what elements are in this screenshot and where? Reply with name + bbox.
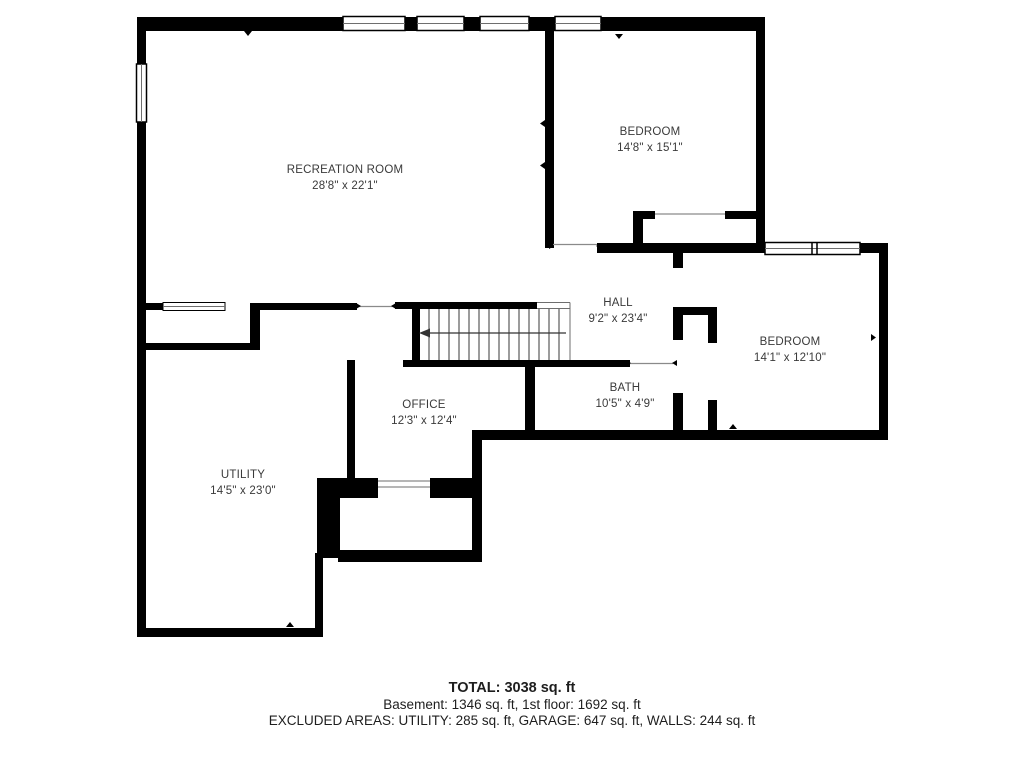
room-dimensions: 9'2" x 23'4" (588, 311, 647, 327)
room-name: RECREATION ROOM (287, 162, 404, 178)
room-dimensions: 14'8" x 15'1" (617, 140, 683, 156)
room-label-utility: UTILITY 14'5" x 23'0" (210, 467, 276, 499)
floor-areas-text: Basement: 1346 sq. ft, 1st floor: 1692 s… (0, 697, 1024, 713)
room-label-bedroom-right: BEDROOM 14'1" x 12'10" (754, 334, 826, 366)
windows-group (137, 17, 861, 311)
floor-plan-drawing (0, 0, 1024, 768)
walls-group (137, 17, 888, 637)
area-summary: TOTAL: 3038 sq. ft Basement: 1346 sq. ft… (0, 680, 1024, 729)
room-name: BATH (595, 380, 654, 396)
room-label-recreation-room: RECREATION ROOM 28'8" x 22'1" (287, 162, 404, 194)
window-mullions (142, 24, 861, 307)
room-dimensions: 14'5" x 23'0" (210, 483, 276, 499)
room-name: BEDROOM (754, 334, 826, 350)
room-label-bedroom-upper: BEDROOM 14'8" x 15'1" (617, 124, 683, 156)
stair-direction-arrow (419, 329, 566, 338)
excluded-areas-text: EXCLUDED AREAS: UTILITY: 285 sq. ft, GAR… (0, 713, 1024, 729)
room-dimensions: 12'3" x 12'4" (391, 413, 457, 429)
room-dimensions: 28'8" x 22'1" (287, 178, 404, 194)
total-area-text: TOTAL: 3038 sq. ft (0, 680, 1024, 697)
room-dimensions: 14'1" x 12'10" (754, 350, 826, 366)
room-label-office: OFFICE 12'3" x 12'4" (391, 397, 457, 429)
room-label-hall: HALL 9'2" x 23'4" (588, 295, 647, 327)
room-name: BEDROOM (617, 124, 683, 140)
room-name: HALL (588, 295, 647, 311)
floor-plan: RECREATION ROOM 28'8" x 22'1" BEDROOM 14… (0, 0, 1024, 768)
room-label-bath: BATH 10'5" x 4'9" (595, 380, 654, 412)
room-name: OFFICE (391, 397, 457, 413)
room-name: UTILITY (210, 467, 276, 483)
stairs-group (419, 303, 570, 361)
room-dimensions: 10'5" x 4'9" (595, 396, 654, 412)
